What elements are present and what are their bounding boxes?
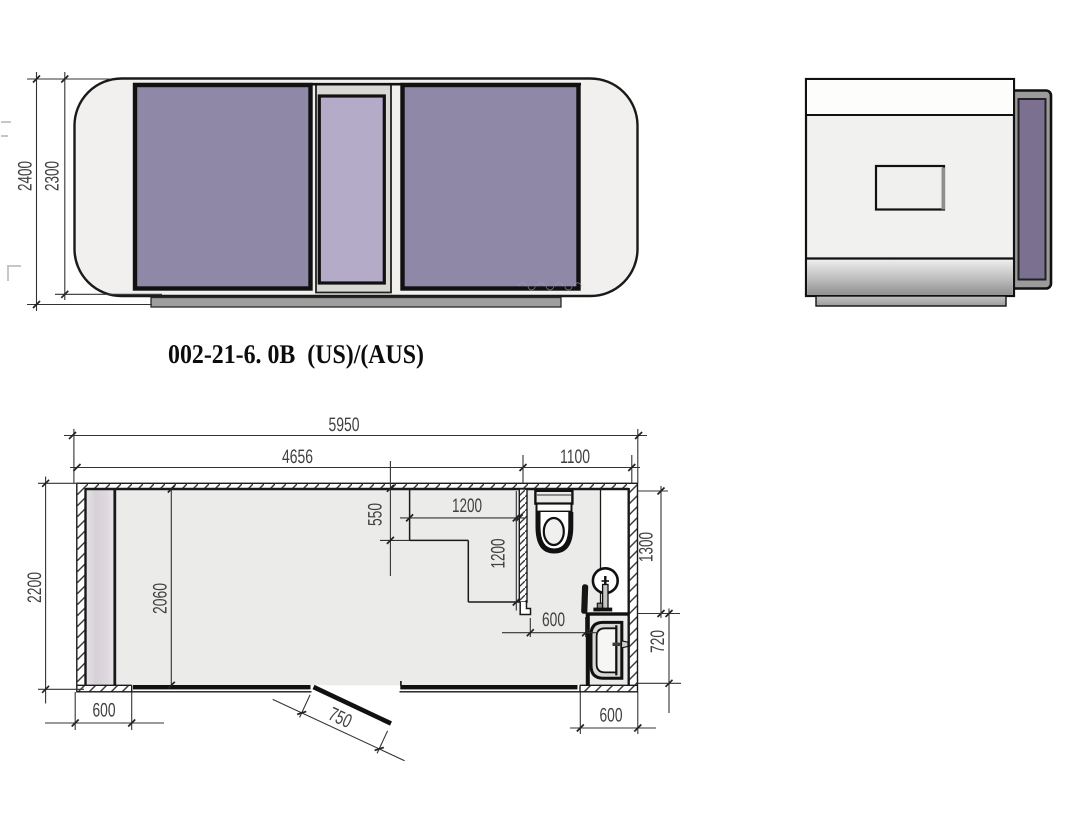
svg-text:1200: 1200 [452,495,482,517]
svg-text:◠◡◠◡◠◡◠: ◠◡◠◡◠◡◠ [518,281,583,292]
svg-text:2400: 2400 [14,161,36,191]
svg-text:1100: 1100 [560,446,590,468]
svg-text:002-21-6. 0B (US)/(AUS): 002-21-6. 0B (US)/(AUS) [168,339,424,369]
svg-text:600: 600 [542,609,565,631]
svg-text:2060: 2060 [149,583,171,614]
svg-text:1200: 1200 [488,538,510,568]
svg-text:2300: 2300 [42,161,64,191]
svg-text:1300: 1300 [635,532,657,562]
svg-text:4656: 4656 [282,446,313,468]
svg-text:5950: 5950 [329,414,360,436]
svg-text:600: 600 [93,700,116,722]
svg-text:550: 550 [365,503,387,526]
svg-text:750: 750 [325,703,355,733]
svg-text:720: 720 [647,630,669,653]
svg-text:600: 600 [600,705,623,727]
svg-text:2200: 2200 [24,572,46,603]
